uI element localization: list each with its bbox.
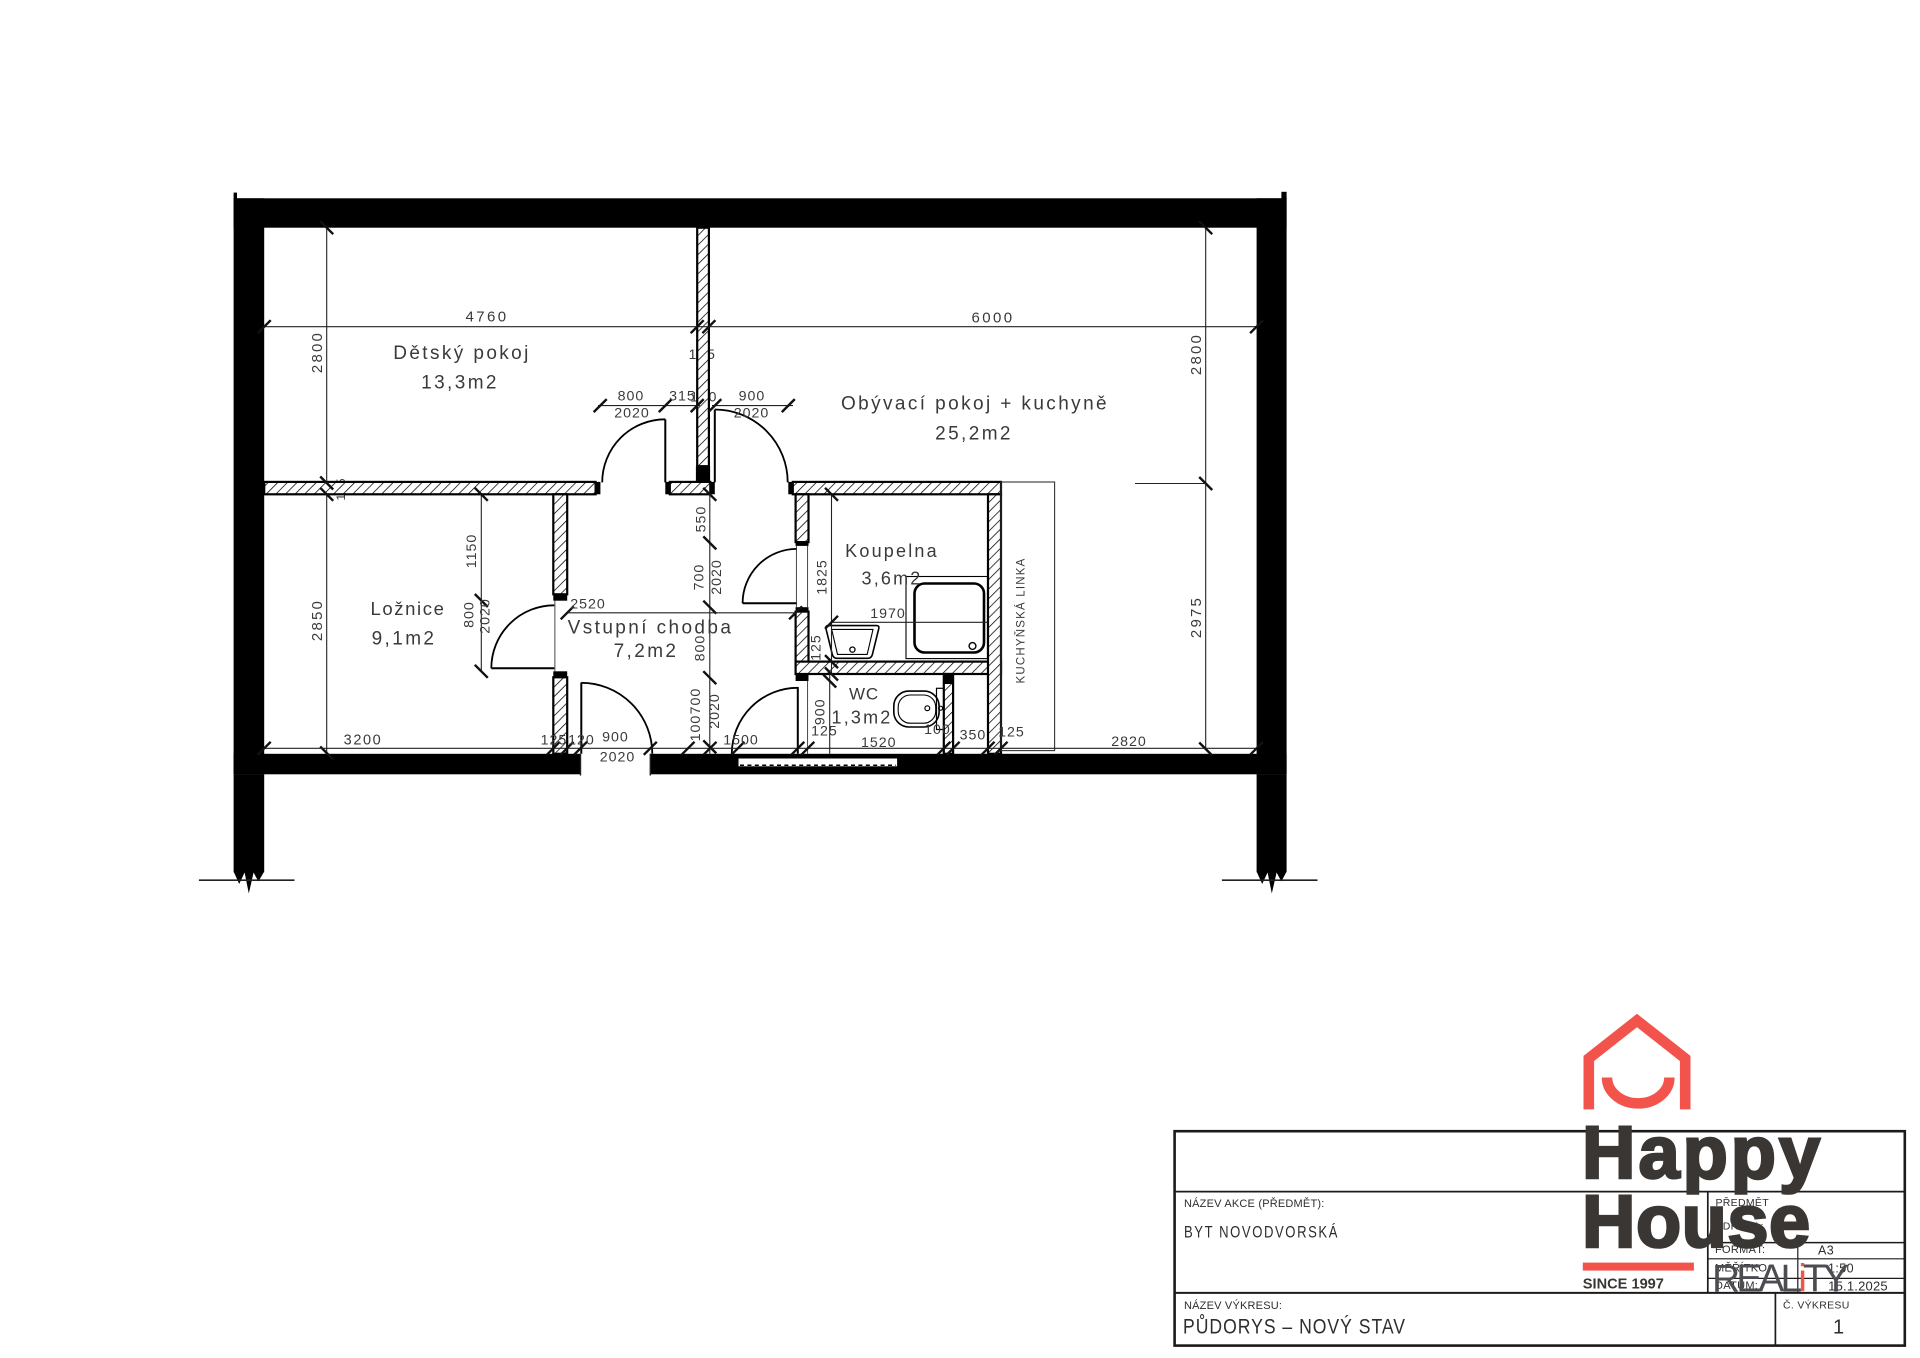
svg-text:125: 125 [809, 634, 825, 661]
svg-text:100: 100 [688, 715, 704, 742]
svg-text:1970: 1970 [870, 606, 906, 622]
svg-text:3,6m2: 3,6m2 [861, 569, 922, 589]
svg-text:NÁZEV VÝKRESU:: NÁZEV VÝKRESU: [1184, 1299, 1282, 1312]
svg-text:Vstupní chodba: Vstupní chodba [568, 618, 734, 639]
svg-text:1500: 1500 [723, 733, 759, 749]
svg-text:125: 125 [998, 724, 1025, 740]
svg-text:7,2m2: 7,2m2 [614, 641, 679, 662]
svg-text:2800: 2800 [1188, 333, 1205, 375]
svg-text:SINCE 1997: SINCE 1997 [1583, 1276, 1664, 1292]
svg-text:2020: 2020 [707, 693, 723, 729]
svg-text:Koupelna: Koupelna [845, 541, 939, 561]
svg-text:2800: 2800 [309, 331, 326, 373]
svg-text:2020: 2020 [709, 559, 725, 595]
svg-text:800: 800 [618, 389, 645, 405]
svg-text:A3: A3 [1818, 1243, 1834, 1257]
svg-text:1825: 1825 [815, 559, 831, 595]
svg-text:800: 800 [462, 601, 478, 628]
svg-text:120: 120 [568, 733, 595, 749]
svg-text:350: 350 [960, 727, 987, 743]
svg-text:Obývací pokoj + kuchyně: Obývací pokoj + kuchyně [841, 394, 1109, 415]
svg-text:315: 315 [669, 389, 696, 405]
svg-text:2520: 2520 [570, 597, 606, 613]
svg-text:550: 550 [694, 506, 710, 533]
svg-text:Ložnice: Ložnice [371, 598, 446, 619]
svg-text:2850: 2850 [309, 599, 326, 641]
svg-text:700: 700 [688, 688, 704, 715]
svg-text:WC: WC [849, 685, 879, 704]
svg-text:2020: 2020 [600, 750, 636, 766]
svg-text:2020: 2020 [734, 406, 770, 422]
svg-text:1150: 1150 [464, 534, 480, 569]
svg-text:9,1m2: 9,1m2 [372, 629, 437, 650]
svg-text:700: 700 [692, 564, 708, 591]
svg-text:3200: 3200 [344, 733, 383, 749]
svg-text:KUCHYŇSKÁ LINKA: KUCHYŇSKÁ LINKA [1015, 557, 1028, 683]
svg-text:REALiTY: REALiTY [1712, 1258, 1849, 1301]
svg-text:900: 900 [812, 698, 828, 725]
svg-text:2975: 2975 [1188, 596, 1205, 638]
svg-text:PŮDORYS – NOVÝ STAV: PŮDORYS – NOVÝ STAV [1183, 1314, 1406, 1339]
svg-text:BYT NOVODVORSKÁ: BYT NOVODVORSKÁ [1184, 1223, 1339, 1242]
svg-text:800: 800 [693, 635, 709, 662]
svg-text:1520: 1520 [861, 735, 897, 751]
svg-text:13,3m2: 13,3m2 [421, 373, 499, 394]
svg-text:125: 125 [541, 733, 568, 749]
svg-text:Dětský pokoj: Dětský pokoj [393, 343, 531, 364]
svg-text:900: 900 [602, 730, 629, 746]
svg-text:1: 1 [1833, 1317, 1844, 1339]
svg-text:6000: 6000 [972, 310, 1015, 327]
svg-text:2020: 2020 [478, 598, 494, 634]
svg-text:NÁZEV AKCE (PŘEDMĚT):: NÁZEV AKCE (PŘEDMĚT): [1184, 1197, 1325, 1210]
svg-text:25,2m2: 25,2m2 [935, 424, 1013, 445]
svg-text:1,3m2: 1,3m2 [831, 708, 892, 728]
svg-text:House: House [1582, 1180, 1811, 1263]
svg-text:2820: 2820 [1111, 734, 1147, 750]
svg-text:900: 900 [739, 389, 766, 405]
svg-text:100: 100 [924, 722, 951, 738]
svg-text:2020: 2020 [614, 406, 650, 422]
svg-text:4760: 4760 [466, 309, 509, 326]
